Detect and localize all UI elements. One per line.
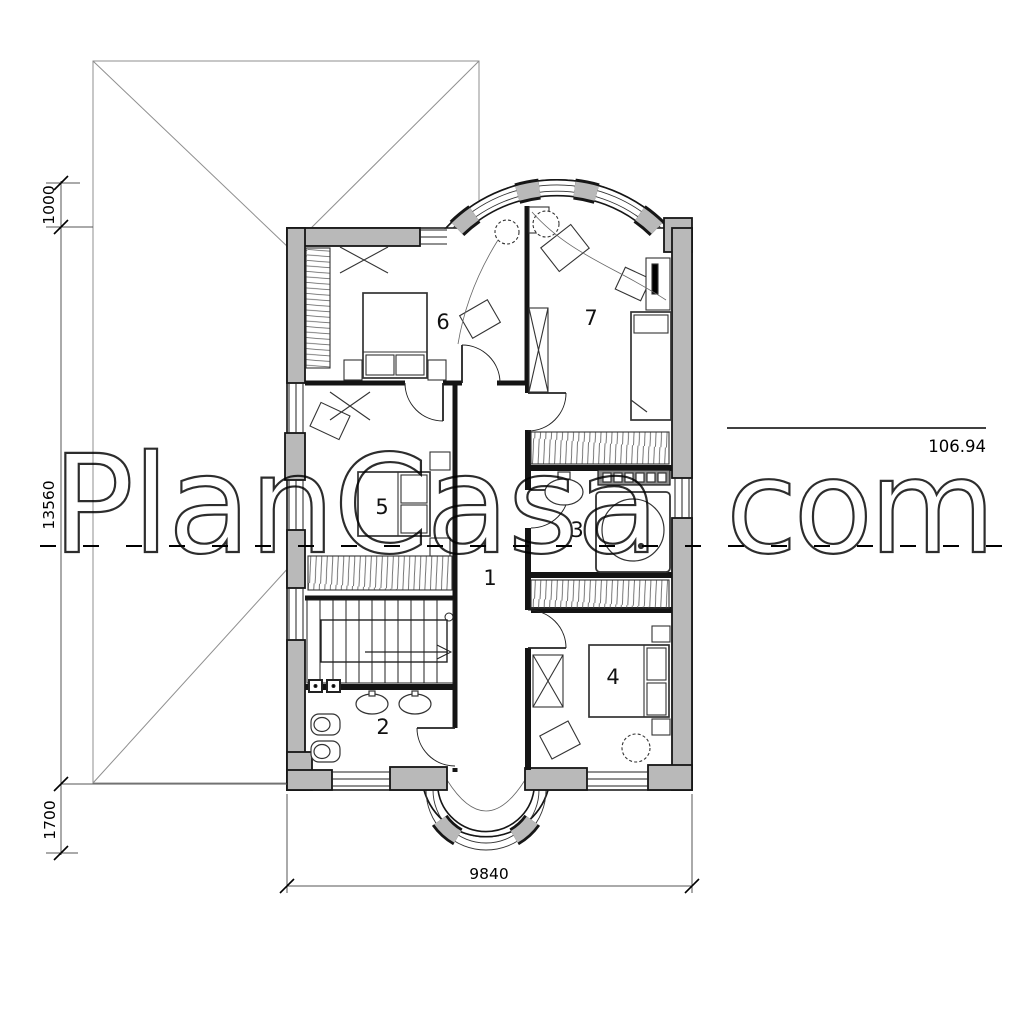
sink-2: [399, 694, 431, 714]
bed-room7: [631, 312, 671, 420]
plant-room6: [495, 220, 519, 244]
toilet: [311, 714, 340, 735]
dim-roof-offset-bottom: 1700: [41, 800, 59, 839]
closet-column-room7: [529, 308, 548, 392]
room-label-living: 7: [584, 306, 597, 330]
plant-room4: [622, 734, 650, 762]
room-label-bedroom-right: 4: [606, 665, 619, 689]
wardrobe-room6: [306, 248, 330, 368]
room-label-bedroom-top: 6: [436, 310, 449, 334]
sink-1: [356, 694, 388, 714]
monitor: [652, 264, 658, 294]
closet-room4: [533, 655, 563, 707]
dim-plan-width: 9840: [469, 865, 508, 883]
bidet: [311, 741, 340, 762]
room-label-wc: 2: [376, 715, 389, 739]
staircase: [307, 600, 453, 692]
plant-room7: [533, 211, 559, 237]
floor-plan-page: 1000 13560 1700 9840 106.94 1 2 3 4 5 6 …: [0, 0, 1018, 1024]
desk-with-monitor: [646, 258, 670, 310]
watermark-text-left: PlanCasa: [52, 427, 658, 585]
watermark-text-right: com: [726, 431, 992, 583]
dim-roof-offset-top: 1000: [40, 185, 58, 224]
floor-plan-drawing: 1000 13560 1700 9840 106.94 1 2 3 4 5 6 …: [0, 0, 1018, 1024]
